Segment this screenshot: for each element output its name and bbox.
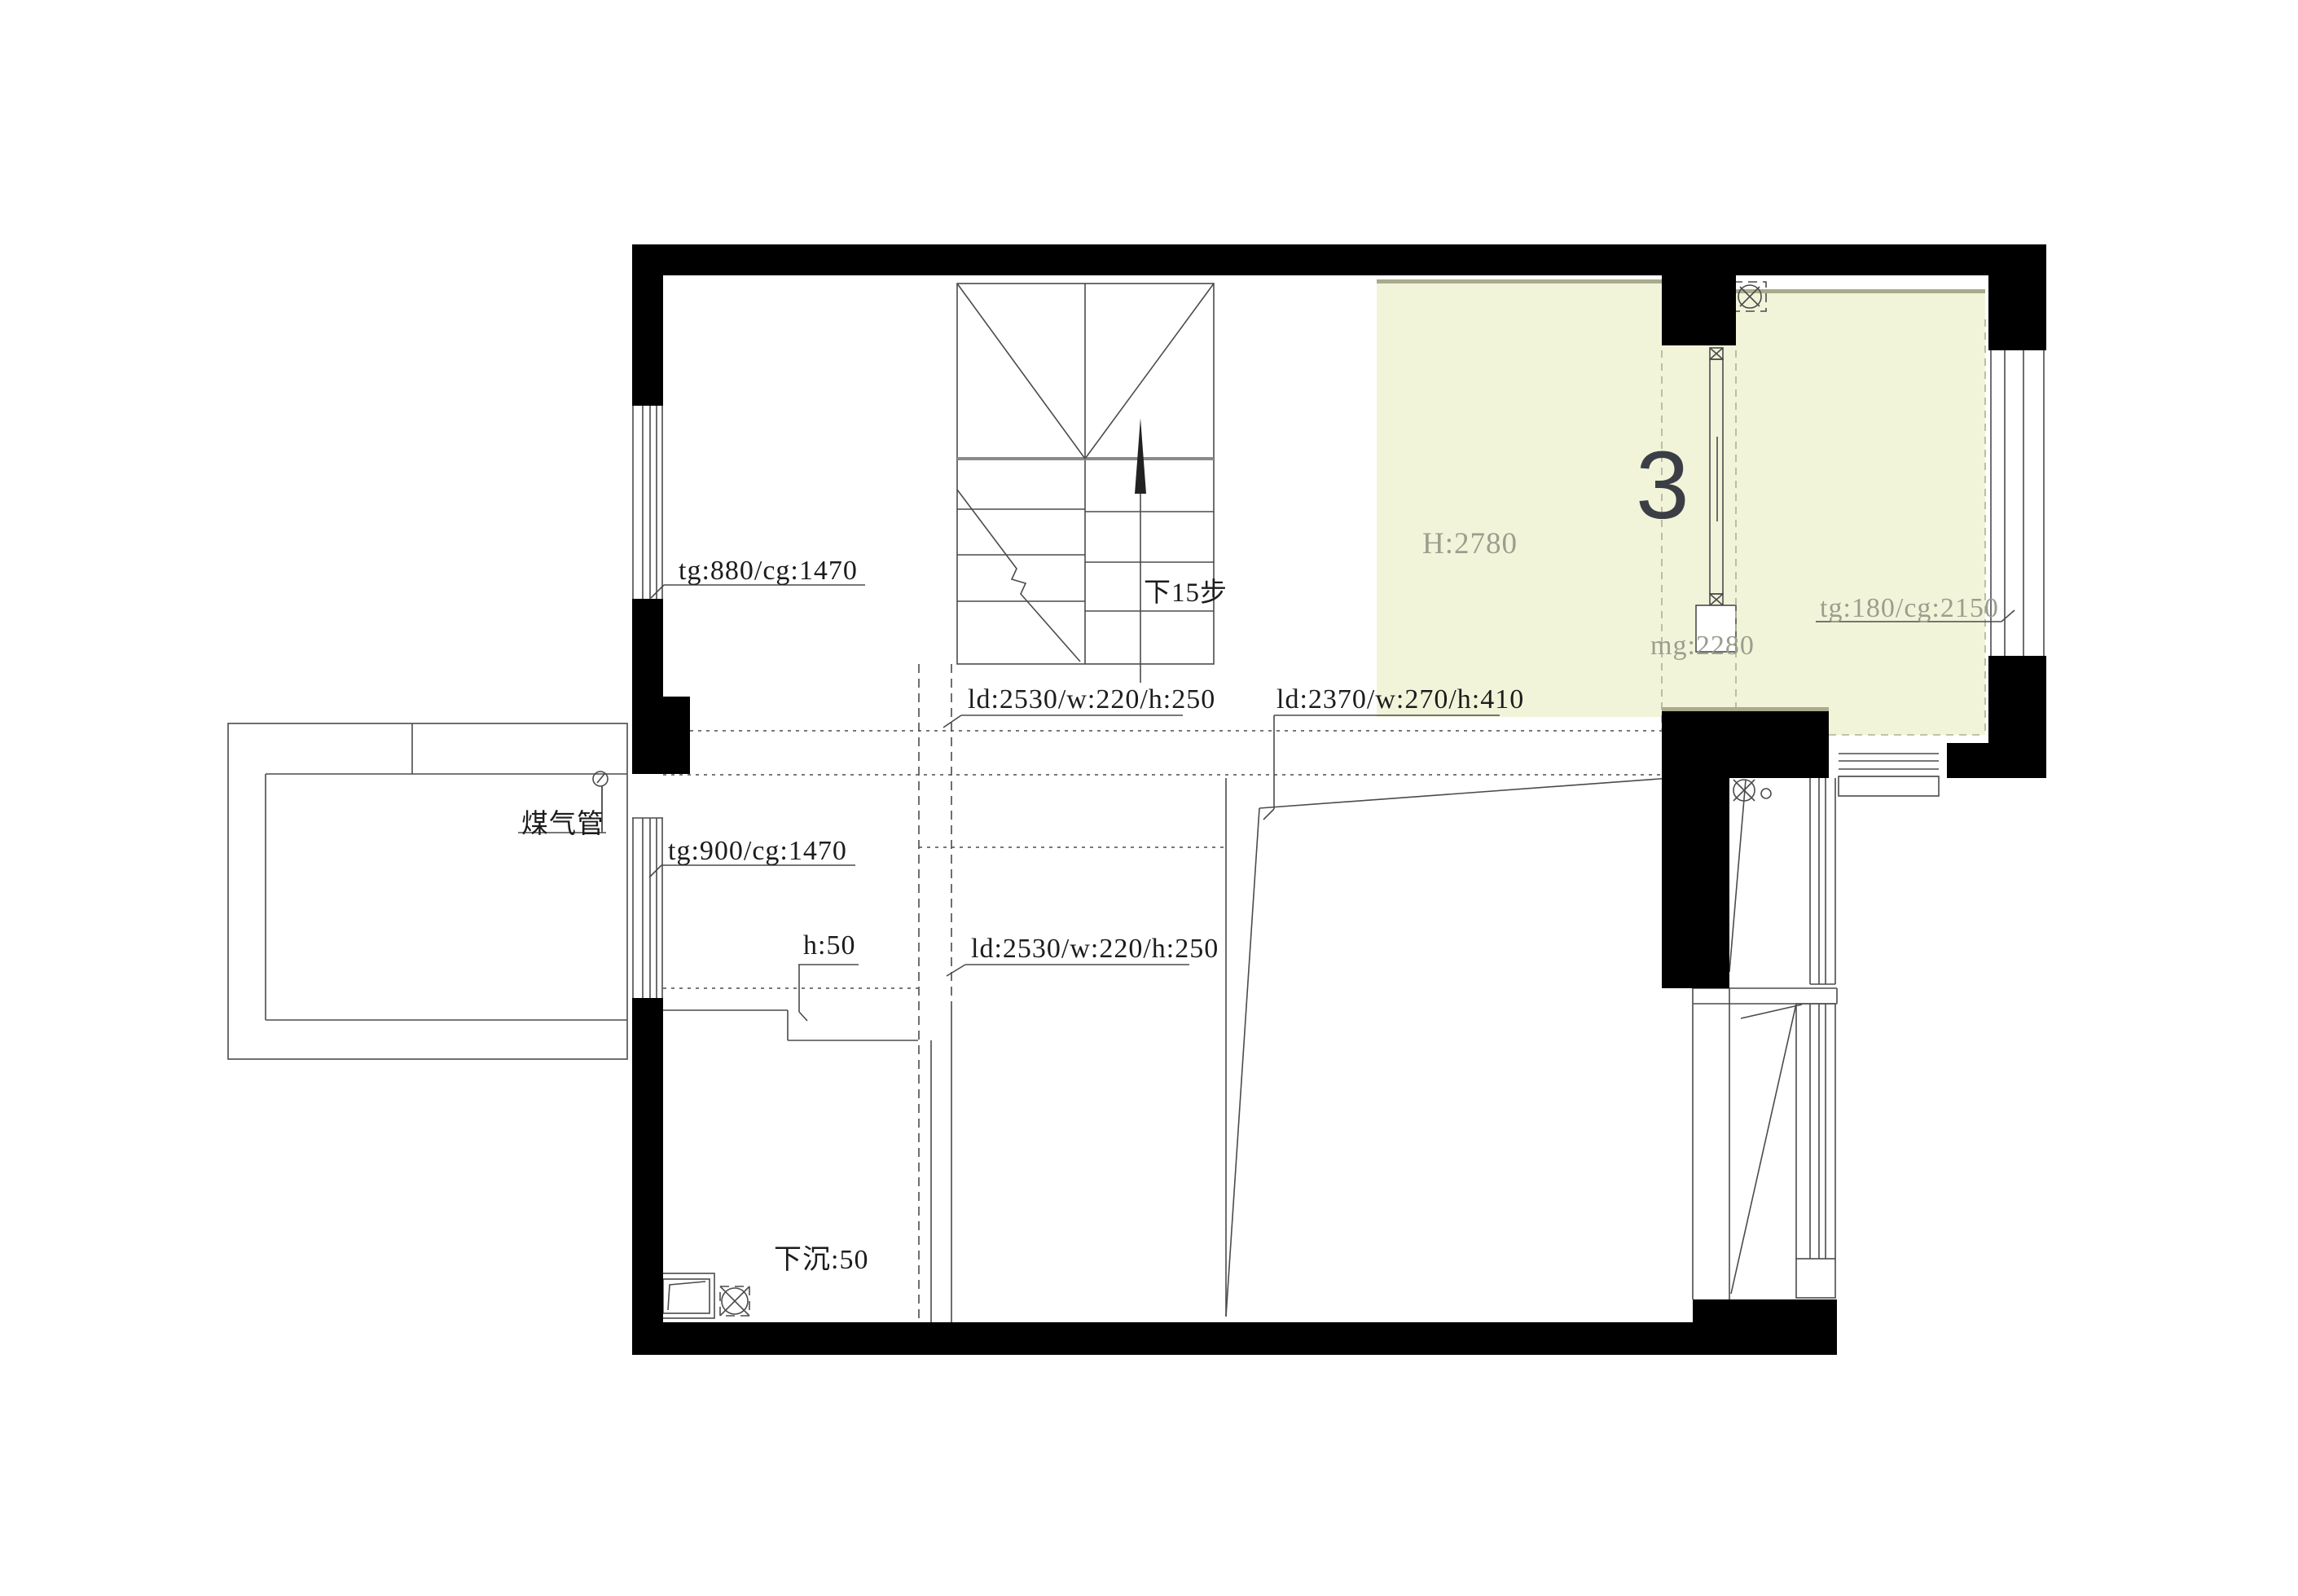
label-beam-right-black: ld:2370/w: <box>1276 684 1404 714</box>
wall-center-block <box>1662 707 1829 778</box>
plan-linework <box>0 0 2298 1596</box>
window-bathroom-top <box>1839 754 1939 796</box>
wall-left-pier <box>663 697 690 774</box>
exhaust-fan-icon <box>1733 282 1766 311</box>
floor-plan-canvas: tg:880/cg:1470 下15步 H:2780 3 mg:2280 tg:… <box>0 0 2298 1596</box>
label-beam-upper: ld:2530/w:220/h:250 <box>968 684 1215 715</box>
label-window-mid-left: tg:900/cg:1470 <box>668 836 847 867</box>
label-window-upper-left: tg:880/cg:1470 <box>679 556 858 587</box>
equipment-box <box>657 1273 714 1318</box>
label-gas-pipe: 煤气管 <box>521 802 604 841</box>
label-window-room3: tg:180/cg:2150 <box>1820 593 1999 624</box>
window-left-middle <box>632 818 663 998</box>
label-beam-right: ld:2370/w:270/h:410 <box>1276 684 1524 715</box>
label-sunken-floor: 下沉:50 <box>774 1237 868 1277</box>
wall-bottom-main <box>632 1322 1693 1355</box>
window-left-upper <box>633 406 662 599</box>
wall-left-upper <box>632 275 663 406</box>
corridor-and-doors <box>1693 988 1837 1299</box>
label-beam-right-gray: 270/h:410 <box>1404 684 1524 714</box>
floor-drain-bottomleft-icon <box>720 1286 749 1316</box>
wall-left-lower <box>632 998 663 1322</box>
label-ceiling-height: H:2780 <box>1422 526 1518 561</box>
annotation-leaders <box>518 585 2015 1021</box>
label-beam-lower: ld:2530/w:220/h:250 <box>971 934 1219 965</box>
balcony <box>228 723 627 1059</box>
door-leaf-large <box>1731 1004 1796 1294</box>
pipe-icon <box>1761 789 1771 798</box>
wall-right-bottom-corner <box>1988 656 2046 778</box>
label-step-height: h:50 <box>803 930 855 961</box>
wall-room3-divider-top <box>1662 275 1736 345</box>
label-stairs-note: 下15步 <box>1144 570 1228 609</box>
wall-right-corner-ext <box>1947 743 1988 778</box>
wall-center-bar <box>1662 778 1729 988</box>
label-room-number: 3 <box>1636 430 1689 541</box>
wall-top <box>632 244 2046 275</box>
wall-left-middle <box>632 599 663 774</box>
label-door-height: mg:2280 <box>1650 631 1755 662</box>
wall-right-top-corner <box>1988 244 2046 350</box>
bathroom-fittings <box>1729 780 1771 972</box>
sliding-door-partition <box>1696 348 1736 652</box>
reference-lines <box>663 319 1985 1322</box>
glass-wall-right <box>1796 778 1835 1298</box>
wall-bottom-right <box>1693 1299 1837 1355</box>
door-leaf-bathroom <box>1729 780 1746 972</box>
floor-platform-edge <box>1226 776 1693 1317</box>
